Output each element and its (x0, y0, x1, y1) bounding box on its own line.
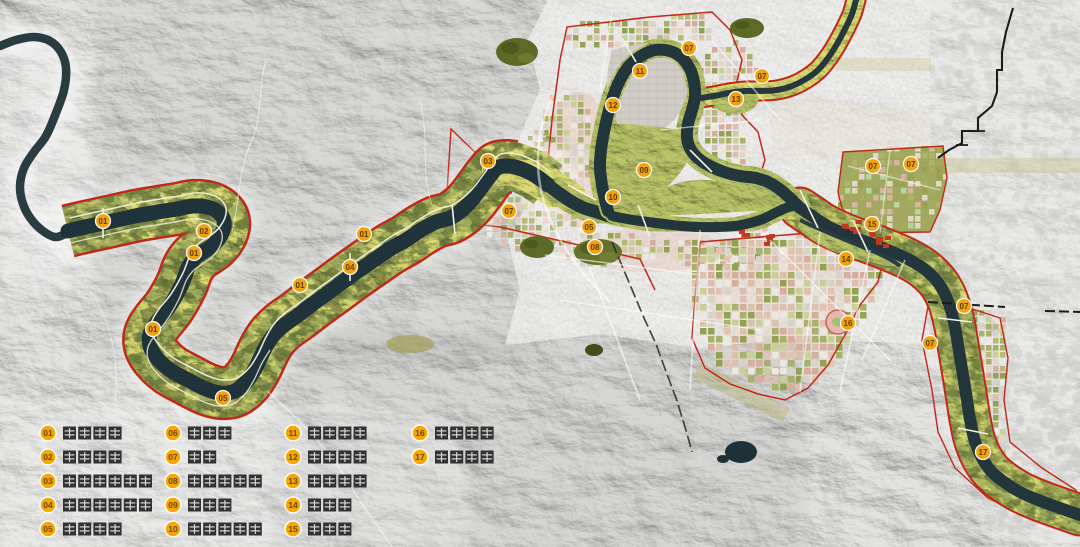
svg-text:07: 07 (869, 162, 878, 171)
svg-text:07: 07 (926, 339, 935, 348)
svg-text:06: 06 (168, 428, 178, 438)
svg-text:07: 07 (758, 72, 767, 81)
svg-text:07: 07 (960, 302, 969, 311)
svg-text:10: 10 (609, 193, 618, 202)
svg-text:14: 14 (842, 255, 851, 264)
svg-text:01: 01 (149, 325, 158, 334)
svg-text:09: 09 (640, 166, 649, 175)
svg-text:15: 15 (288, 524, 298, 534)
svg-text:16: 16 (844, 319, 853, 328)
svg-text:17: 17 (415, 452, 425, 462)
svg-text:01: 01 (99, 217, 108, 226)
svg-text:01: 01 (360, 230, 369, 239)
svg-text:12: 12 (288, 452, 298, 462)
svg-text:09: 09 (168, 500, 178, 510)
svg-text:01: 01 (296, 281, 305, 290)
svg-text:11: 11 (636, 67, 645, 76)
svg-text:05: 05 (219, 394, 228, 403)
svg-text:13: 13 (288, 476, 298, 486)
svg-text:08: 08 (591, 243, 600, 252)
svg-text:11: 11 (289, 428, 298, 438)
svg-text:12: 12 (609, 101, 618, 110)
svg-text:04: 04 (43, 500, 53, 510)
svg-text:03: 03 (43, 476, 53, 486)
svg-text:07: 07 (907, 160, 916, 169)
svg-text:04: 04 (346, 263, 355, 272)
svg-text:15: 15 (868, 220, 877, 229)
svg-text:07: 07 (505, 207, 514, 216)
svg-text:08: 08 (168, 476, 178, 486)
svg-text:01: 01 (43, 428, 53, 438)
svg-text:01: 01 (190, 249, 199, 258)
svg-text:10: 10 (168, 524, 178, 534)
svg-text:03: 03 (484, 157, 493, 166)
svg-text:02: 02 (200, 227, 209, 236)
svg-text:17: 17 (979, 448, 988, 457)
svg-text:02: 02 (43, 452, 53, 462)
svg-text:14: 14 (288, 500, 298, 510)
svg-text:07: 07 (168, 452, 178, 462)
svg-text:07: 07 (685, 44, 694, 53)
svg-text:16: 16 (415, 428, 425, 438)
svg-text:05: 05 (43, 524, 53, 534)
svg-text:05: 05 (585, 223, 594, 232)
svg-text:13: 13 (732, 95, 741, 104)
